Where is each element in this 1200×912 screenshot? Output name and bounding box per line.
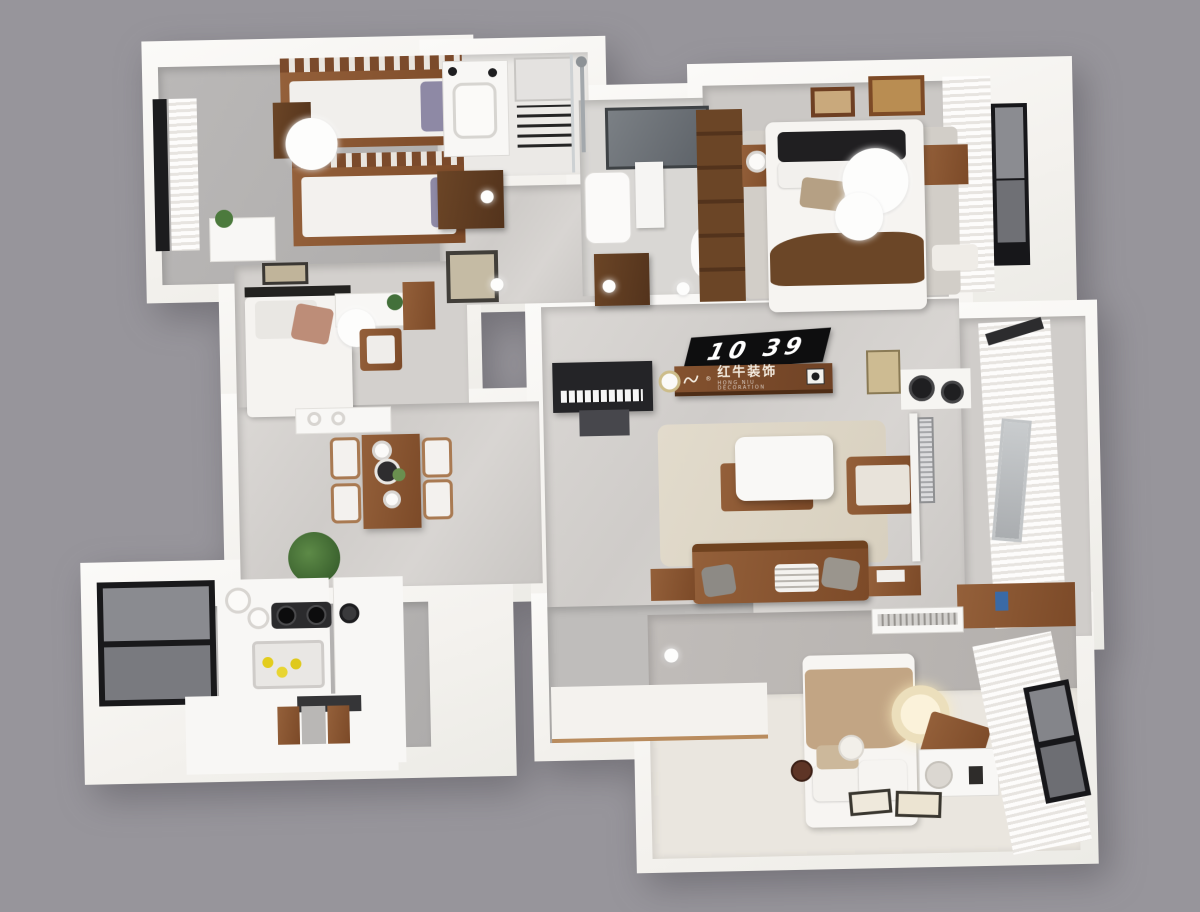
island-gray-panel [301,706,326,744]
bath2-shower-glass [605,106,710,170]
master-bench [932,244,979,271]
master-blanket [770,231,925,286]
dining-chair [423,479,454,520]
window-glass [1040,741,1085,798]
bath2-towel [635,162,664,229]
bath1-sink [452,82,497,139]
burner [306,605,326,625]
island-wood-inlay [277,706,300,744]
master-nightstand-right [922,144,969,185]
floorplan-render: 10 39 ® 红牛装饰 HONG NIU DECORATION [0,0,1200,900]
window-glass [1029,685,1074,742]
window-glass [996,180,1025,242]
master-bay-window [991,103,1030,266]
balcony-desk [957,582,1076,628]
window-glass [995,107,1024,178]
desk-book [995,591,1008,610]
coffee-table [735,435,834,501]
bath2-washer [584,171,631,244]
shoe-cabinet [866,350,901,395]
window-glass [103,586,210,641]
dining-chair [422,437,453,478]
floor-art-frame [848,789,892,817]
floor-art-frame [895,791,942,818]
kids-window-curtain [169,98,200,251]
bath2-door [594,253,650,306]
sofa-pillow-taupe [821,556,861,591]
desk-photo-frame [969,766,983,784]
kitchen-window [97,580,218,706]
bath1-towel-rack [517,104,574,147]
piano-keys [561,389,643,403]
piano-bench [579,409,630,436]
burner [276,605,296,625]
chair-seat [367,335,396,364]
brand-console: ® 红牛装饰 HONG NIU DECORATION [674,363,833,396]
dining-chair [330,437,361,480]
study-chair [359,328,402,371]
study-wall-art [262,262,308,285]
gold-plate [658,370,680,392]
master-wall-art [810,87,855,118]
apartment-plan: 10 39 ® 红牛装饰 HONG NIU DECORATION [0,0,1200,912]
dining-chair [331,483,362,524]
master-wardrobe [696,109,746,302]
radiator-panel [917,417,935,503]
entry-art-panel [446,250,499,303]
camera-badge-icon [806,368,824,384]
tv-time-text: 10 39 [704,333,809,366]
brand-name: 红牛装饰 [717,364,800,379]
armchair-cushion [855,465,910,506]
piano [552,361,653,413]
side-table-left [651,568,696,601]
registered-mark: ® [705,375,711,382]
corridor-wardrobe [551,683,768,744]
bull-logo-icon [682,372,699,386]
side-table-tray [877,570,905,583]
armchair [846,455,919,514]
master-wall-art [868,75,925,116]
ac-vents [878,613,958,627]
kitchen-cooktop [271,602,332,629]
study-cabinet [402,281,435,330]
entry-door [437,170,504,229]
sofa-pillow-striped [774,563,819,592]
bath1-mirror-cabinet [514,57,573,102]
brand-text-group: 红牛装饰 HONG NIU DECORATION [717,364,801,391]
window-glass [104,645,211,700]
sofa-pillow-gray [701,563,737,598]
study-accent-pillow [290,303,334,345]
brand-subtext: HONG NIU DECORATION [717,379,800,391]
island-wood-inlay [327,705,350,743]
